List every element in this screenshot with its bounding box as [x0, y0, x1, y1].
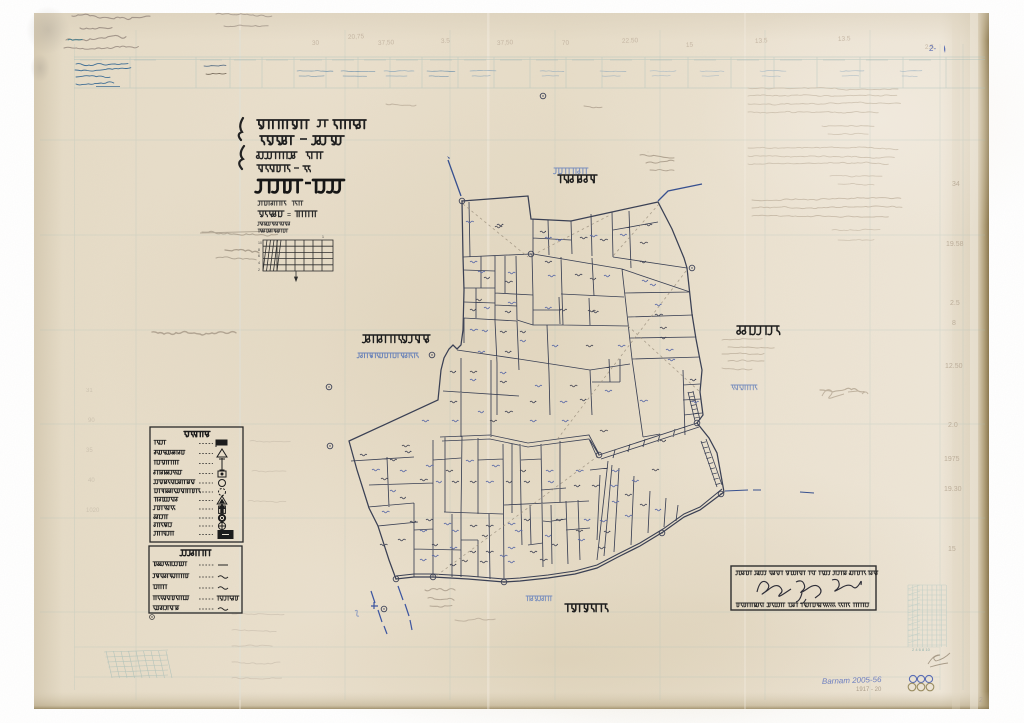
svg-text:34: 34	[952, 181, 960, 188]
svg-text:12.50: 12.50	[945, 363, 963, 370]
svg-text:3.5: 3.5	[441, 38, 451, 45]
svg-text:90: 90	[88, 418, 95, 424]
svg-text:1917 - 20: 1917 - 20	[856, 687, 882, 693]
svg-text:19.58: 19.58	[946, 241, 964, 248]
svg-text:22.50: 22.50	[622, 37, 639, 45]
svg-text:35: 35	[86, 448, 93, 454]
svg-text:8: 8	[258, 248, 260, 252]
svg-text:31: 31	[86, 388, 93, 394]
svg-text:20,75: 20,75	[348, 33, 365, 41]
svg-text:37,50: 37,50	[497, 39, 514, 47]
svg-text:2: 2	[258, 268, 260, 272]
svg-text:1: 1	[322, 235, 324, 239]
svg-text:1020: 1020	[86, 508, 100, 514]
svg-text:10: 10	[258, 241, 262, 245]
svg-text:15: 15	[948, 546, 956, 553]
svg-text:6: 6	[258, 254, 260, 258]
svg-text:2.5: 2.5	[950, 300, 960, 307]
svg-text:13.5: 13.5	[838, 35, 851, 43]
svg-text:2.0: 2.0	[948, 422, 958, 429]
svg-text:19.30: 19.30	[944, 486, 962, 493]
svg-text:15: 15	[686, 42, 694, 49]
svg-text:2: 2	[979, 697, 983, 704]
svg-text:70: 70	[562, 40, 570, 47]
svg-text:=: =	[287, 212, 291, 219]
svg-text:40: 40	[88, 478, 95, 484]
svg-text:4: 4	[258, 261, 260, 265]
svg-text:1975: 1975	[944, 456, 960, 463]
svg-text:8: 8	[952, 320, 956, 327]
svg-text:30: 30	[312, 40, 320, 47]
svg-text:2 4 6 8 10: 2 4 6 8 10	[912, 647, 931, 652]
svg-text:2-: 2-	[929, 44, 936, 53]
svg-text:13.5: 13.5	[755, 37, 768, 45]
svg-text:37,50: 37,50	[378, 39, 395, 47]
